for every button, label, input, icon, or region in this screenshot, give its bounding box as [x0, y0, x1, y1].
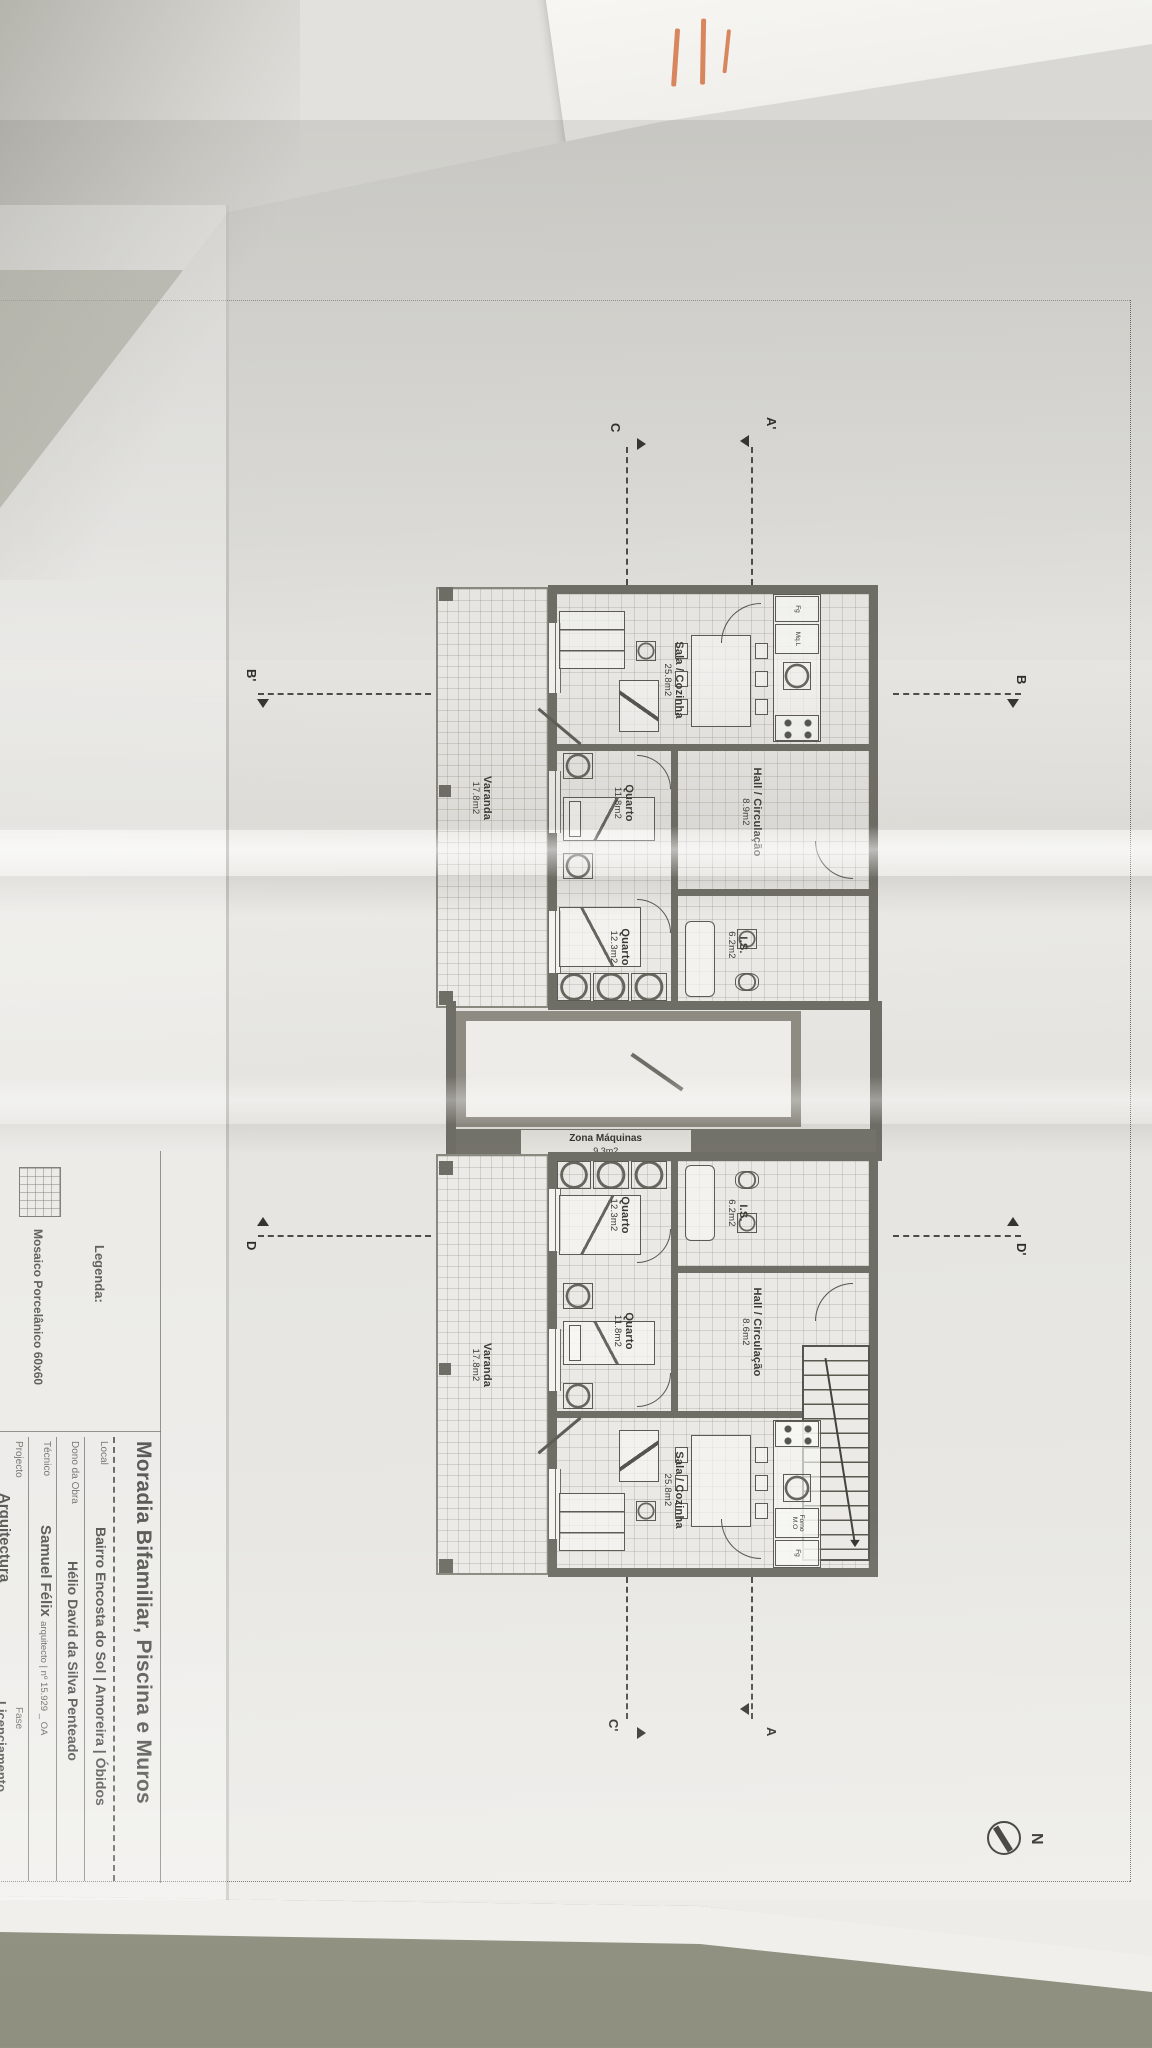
- stove: [775, 1421, 819, 1447]
- room-name: Quarto: [619, 1196, 631, 1233]
- room-name: Sala / Cozinha: [673, 1451, 685, 1528]
- room-area: 17.8m2: [469, 743, 480, 853]
- kitchen-sink: [783, 662, 811, 690]
- envelope-handwriting-stroke: [722, 29, 731, 73]
- wardrobe: [557, 1161, 591, 1189]
- chair: [755, 643, 768, 659]
- titleblock-divider: [0, 1431, 161, 1432]
- room-name: Zona Máquinas: [570, 1133, 643, 1144]
- projecto-value: Arquitectura: [0, 1493, 13, 1582]
- room-area: 12.3m2: [607, 907, 618, 987]
- wardrobe: [557, 973, 591, 1001]
- room-label-hall-a: Hall / Circulação 8.9m2: [739, 767, 763, 857]
- piscina: [456, 1011, 801, 1127]
- legend-swatch-tile: [19, 1167, 61, 1217]
- sheet-frame-right: [0, 1881, 1131, 1882]
- room-name: Sala / Cozinha: [673, 641, 685, 718]
- section-marker-c: C: [608, 423, 623, 432]
- section-marker-b: B: [1014, 675, 1029, 684]
- section-marker-b-prime: B': [244, 669, 259, 681]
- room-name: I.S.: [737, 1204, 749, 1221]
- room-name: Quarto: [623, 784, 635, 821]
- dining-table: [691, 1435, 751, 1527]
- bathtub: [685, 921, 715, 997]
- window: [549, 771, 561, 833]
- section-arrow-icon: [637, 438, 646, 450]
- legend-item: Mosaico Porcelânico 60x60: [30, 1229, 45, 1429]
- wardrobe: [631, 1161, 667, 1189]
- appliance-oven: Forno M.O: [775, 1508, 819, 1538]
- section-arrow-icon: [257, 699, 269, 708]
- room-name: Varanda: [481, 1343, 493, 1387]
- room-area: 11.8m2: [611, 1291, 622, 1371]
- section-line-a: [751, 1577, 753, 1719]
- room-area: 25.8m2: [661, 625, 672, 735]
- room-name: Hall / Circulação: [751, 768, 763, 857]
- side-table: [636, 641, 656, 661]
- room-area: 8.9m2: [739, 767, 750, 857]
- varanda-post: [439, 1559, 453, 1573]
- room-area: 12.3m2: [607, 1175, 618, 1255]
- toilet: [735, 973, 759, 991]
- bathtub: [685, 1165, 715, 1241]
- sheet-title: Moradia Bifamiliar, Piscina e Muros: [131, 1441, 155, 1881]
- appliance-fridge: Fg: [775, 1540, 819, 1566]
- room-area: 6.2m2: [725, 1183, 736, 1243]
- chair: [755, 1475, 768, 1491]
- section-arrow-icon: [740, 1703, 749, 1715]
- room-name: Varanda: [481, 776, 493, 820]
- room-name: I.S.: [737, 936, 749, 953]
- section-line-d: [893, 1235, 1021, 1237]
- section-marker-d: D: [244, 1241, 259, 1250]
- room-label-hall-b: Hall / Circulação 8.6m2: [739, 1287, 763, 1377]
- section-marker-a: A: [764, 1727, 779, 1736]
- room-label-sala-a: Sala / Cozinha 25.8m2: [661, 625, 685, 735]
- section-line-b: [258, 693, 431, 695]
- varanda-post: [439, 1363, 451, 1375]
- room-label-sala-b: Sala / Cozinha 25.8m2: [661, 1435, 685, 1545]
- sofa: [559, 1493, 625, 1551]
- section-line-b: [893, 693, 1021, 695]
- sofa: [559, 611, 625, 669]
- chair: [755, 1503, 768, 1519]
- stairs-arrow-head: [850, 1540, 860, 1547]
- room-area: 8.6m2: [739, 1287, 750, 1377]
- north-needle: [993, 1826, 1013, 1853]
- window: [549, 1329, 561, 1391]
- dono-label: Dono da Obra: [69, 1441, 80, 1504]
- sheet-frame-top: [1130, 300, 1131, 1881]
- section-arrow-icon: [740, 435, 749, 447]
- section-arrow-icon: [1007, 1217, 1019, 1226]
- photo-of-floorplan: { "scene": { "table_color": "#9c9c8e", "…: [0, 0, 1152, 2048]
- wardrobe: [563, 1383, 593, 1409]
- section-arrow-icon: [1007, 699, 1019, 708]
- local-label: Local: [98, 1441, 109, 1465]
- north-label: N: [1027, 1833, 1045, 1845]
- room-name: Hall / Circulação: [751, 1288, 763, 1377]
- chair: [755, 699, 768, 715]
- room-label-quarto1-a: Quarto 11.8m2: [611, 763, 635, 843]
- legend-heading: Legenda:: [92, 1245, 107, 1303]
- wardrobe: [563, 853, 593, 879]
- stove: [775, 715, 819, 741]
- wardrobe: [631, 973, 667, 1001]
- section-arrow-icon: [257, 1217, 269, 1226]
- tecnico-suffix: arquitecto | nº 15.929 _ OA: [38, 1621, 49, 1735]
- appliance-washer: Mq.L: [775, 624, 819, 654]
- rule: [84, 1437, 85, 1881]
- title-underline: [113, 1437, 115, 1881]
- chair: [755, 671, 768, 687]
- wall: [671, 744, 678, 1010]
- tecnico-label: Técnico: [41, 1441, 52, 1476]
- room-area: 17.8m2: [469, 1310, 480, 1420]
- section-marker-a-prime: A': [764, 417, 779, 429]
- wardrobe: [563, 1283, 593, 1309]
- room-name: Quarto: [623, 1312, 635, 1349]
- section-arrow-icon: [637, 1727, 646, 1739]
- room-label-varanda-b: Varanda 17.8m2: [469, 1310, 493, 1420]
- sheet-frame-left: [0, 300, 1131, 301]
- room-label-is-a: I.S. 6.2m2: [725, 915, 749, 975]
- north-arrow-icon: [987, 1821, 1021, 1855]
- envelope-handwriting-stroke: [671, 28, 680, 86]
- room-label-quarto1-b: Quarto 11.8m2: [611, 1291, 635, 1371]
- section-line-c: [626, 447, 628, 585]
- drawing-sheet: C A' C' A B B' D' D Fg Mq.L: [0, 95, 1152, 1895]
- tecnico-value: Samuel Félix: [37, 1525, 54, 1617]
- fase-label: Fase: [13, 1707, 24, 1729]
- tv-cabinet: [619, 1430, 659, 1482]
- room-label-varanda-a: Varanda 17.8m2: [469, 743, 493, 853]
- side-table: [636, 1501, 656, 1521]
- section-marker-c-prime: C': [606, 1719, 621, 1731]
- room-label-quarto2-b: Quarto 12.3m2: [607, 1175, 631, 1255]
- wall: [548, 744, 878, 751]
- wall: [446, 1001, 456, 1161]
- appliance-fridge: Fg: [775, 596, 819, 622]
- varanda-post: [439, 785, 451, 797]
- room-label-is-b: I.S. 6.2m2: [725, 1183, 749, 1243]
- projecto-label: Projecto: [13, 1441, 24, 1478]
- rule: [56, 1437, 57, 1881]
- room-name: Quarto: [619, 928, 631, 965]
- room-area: 11.8m2: [611, 763, 622, 843]
- local-value: Bairro Encosta do Sol | Amoreira | Óbido…: [93, 1527, 109, 1883]
- varanda-post: [439, 587, 453, 601]
- wall: [678, 889, 878, 896]
- section-marker-d-prime: D': [1014, 1243, 1029, 1255]
- kitchen-sink: [783, 1474, 811, 1502]
- section-line-d: [258, 1235, 431, 1237]
- room-label-quarto2-a: Quarto 12.3m2: [607, 907, 631, 987]
- envelope-handwriting-stroke: [700, 19, 706, 85]
- wall: [678, 1266, 878, 1273]
- tv-cabinet: [619, 680, 659, 732]
- wardrobe: [563, 753, 593, 779]
- room-area: 6.2m2: [725, 915, 736, 975]
- pillow: [569, 801, 581, 837]
- pillow: [569, 1325, 581, 1361]
- rule: [28, 1437, 29, 1881]
- room-area: 25.8m2: [661, 1435, 672, 1545]
- titleblock-top-rule: [160, 1151, 161, 1883]
- fase-value: Licenciamento: [0, 1701, 9, 1792]
- section-line-c: [626, 1577, 628, 1719]
- dining-table: [691, 635, 751, 727]
- tecnico-value-row: Samuel Félix arquitecto | nº 15.929 _ OA: [36, 1525, 54, 1885]
- section-line-a: [751, 447, 753, 585]
- varanda-post: [439, 1161, 453, 1175]
- chair: [755, 1447, 768, 1463]
- dono-value: Hélio David da Silva Penteado: [65, 1561, 81, 1881]
- wall: [671, 1152, 678, 1418]
